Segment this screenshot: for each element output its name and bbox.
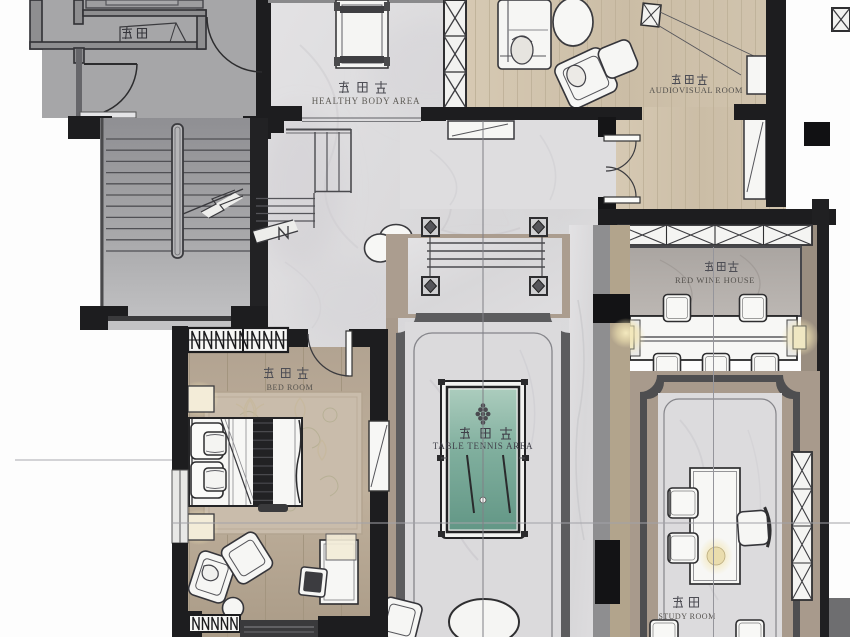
svg-text:BED ROOM: BED ROOM bbox=[267, 383, 314, 392]
svg-text:HEALTHY BODY AREA: HEALTHY BODY AREA bbox=[312, 96, 421, 106]
svg-text:AUDIOVISUAL ROOM: AUDIOVISUAL ROOM bbox=[649, 85, 743, 95]
svg-text:RED WINE HOUSE: RED WINE HOUSE bbox=[675, 275, 755, 285]
